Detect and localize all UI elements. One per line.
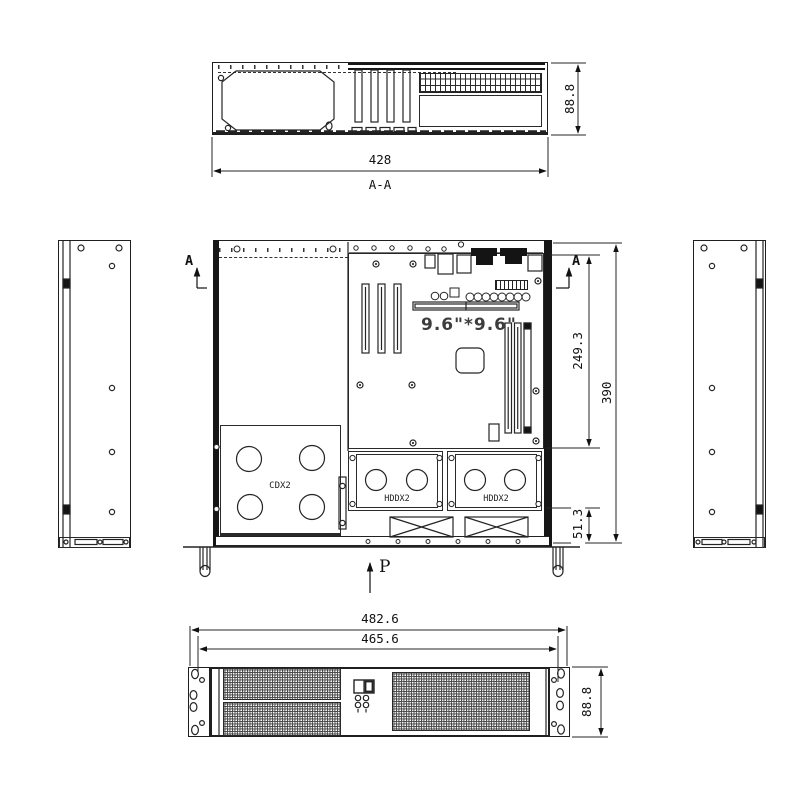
bios-chip — [489, 424, 499, 441]
card-slot-guides — [352, 70, 416, 132]
right-side-details — [696, 241, 763, 547]
load-label: P — [379, 557, 390, 577]
fan2 — [465, 517, 528, 537]
dim-front-inner-width: 465.6 — [320, 632, 440, 646]
psu-outline — [218, 71, 334, 131]
dim-fan-zone: 51.3 — [571, 504, 585, 544]
agp-slot — [413, 302, 519, 310]
left-side-details — [63, 241, 128, 547]
hdd-bay2-label: HDDX2 — [471, 494, 521, 504]
cd-bay-label: CDX2 — [255, 481, 305, 491]
plan-structure-lines — [348, 242, 543, 451]
rear-io-ports — [425, 248, 542, 274]
dim-section-height: 88.8 — [563, 79, 577, 119]
front-panel-lines — [219, 667, 546, 737]
serial-port-connectors — [471, 248, 527, 265]
section-view-label: A-A — [330, 178, 430, 192]
left-foot — [200, 547, 210, 577]
lineart-overlay — [0, 0, 800, 800]
section-cut-mark-right — [556, 268, 569, 288]
board-size-text: 9.6"*9.6" — [421, 315, 517, 335]
bottom-rail-screws — [366, 540, 520, 544]
cpu-socket — [456, 348, 484, 373]
dim-section-width: 428 — [330, 153, 430, 167]
dim-front-height: 88.8 — [580, 677, 594, 727]
section-cut-mark-left — [197, 268, 207, 288]
section-mark-letter-left: A — [185, 253, 193, 269]
hdd-bay1-label: HDDX2 — [372, 494, 422, 504]
section-mark-letter-right: A — [572, 253, 580, 269]
fan1 — [390, 517, 453, 537]
dim-board-depth: 249.3 — [571, 326, 585, 376]
dimm-slots — [505, 323, 531, 433]
front-ear-holes — [190, 669, 564, 735]
pci-slots — [362, 284, 401, 353]
dim-front-outer-width: 482.6 — [320, 612, 440, 626]
plan-rail-screws — [234, 242, 464, 252]
chassis-technical-drawing: 428 A-A 88.8 A A 9.6"*9.6" CDX2 HDDX2 HD… — [0, 0, 800, 800]
right-foot — [553, 547, 563, 577]
front-control-cluster — [354, 680, 374, 713]
dim-total-depth: 390 — [600, 368, 614, 418]
capacitor-row — [431, 288, 530, 301]
